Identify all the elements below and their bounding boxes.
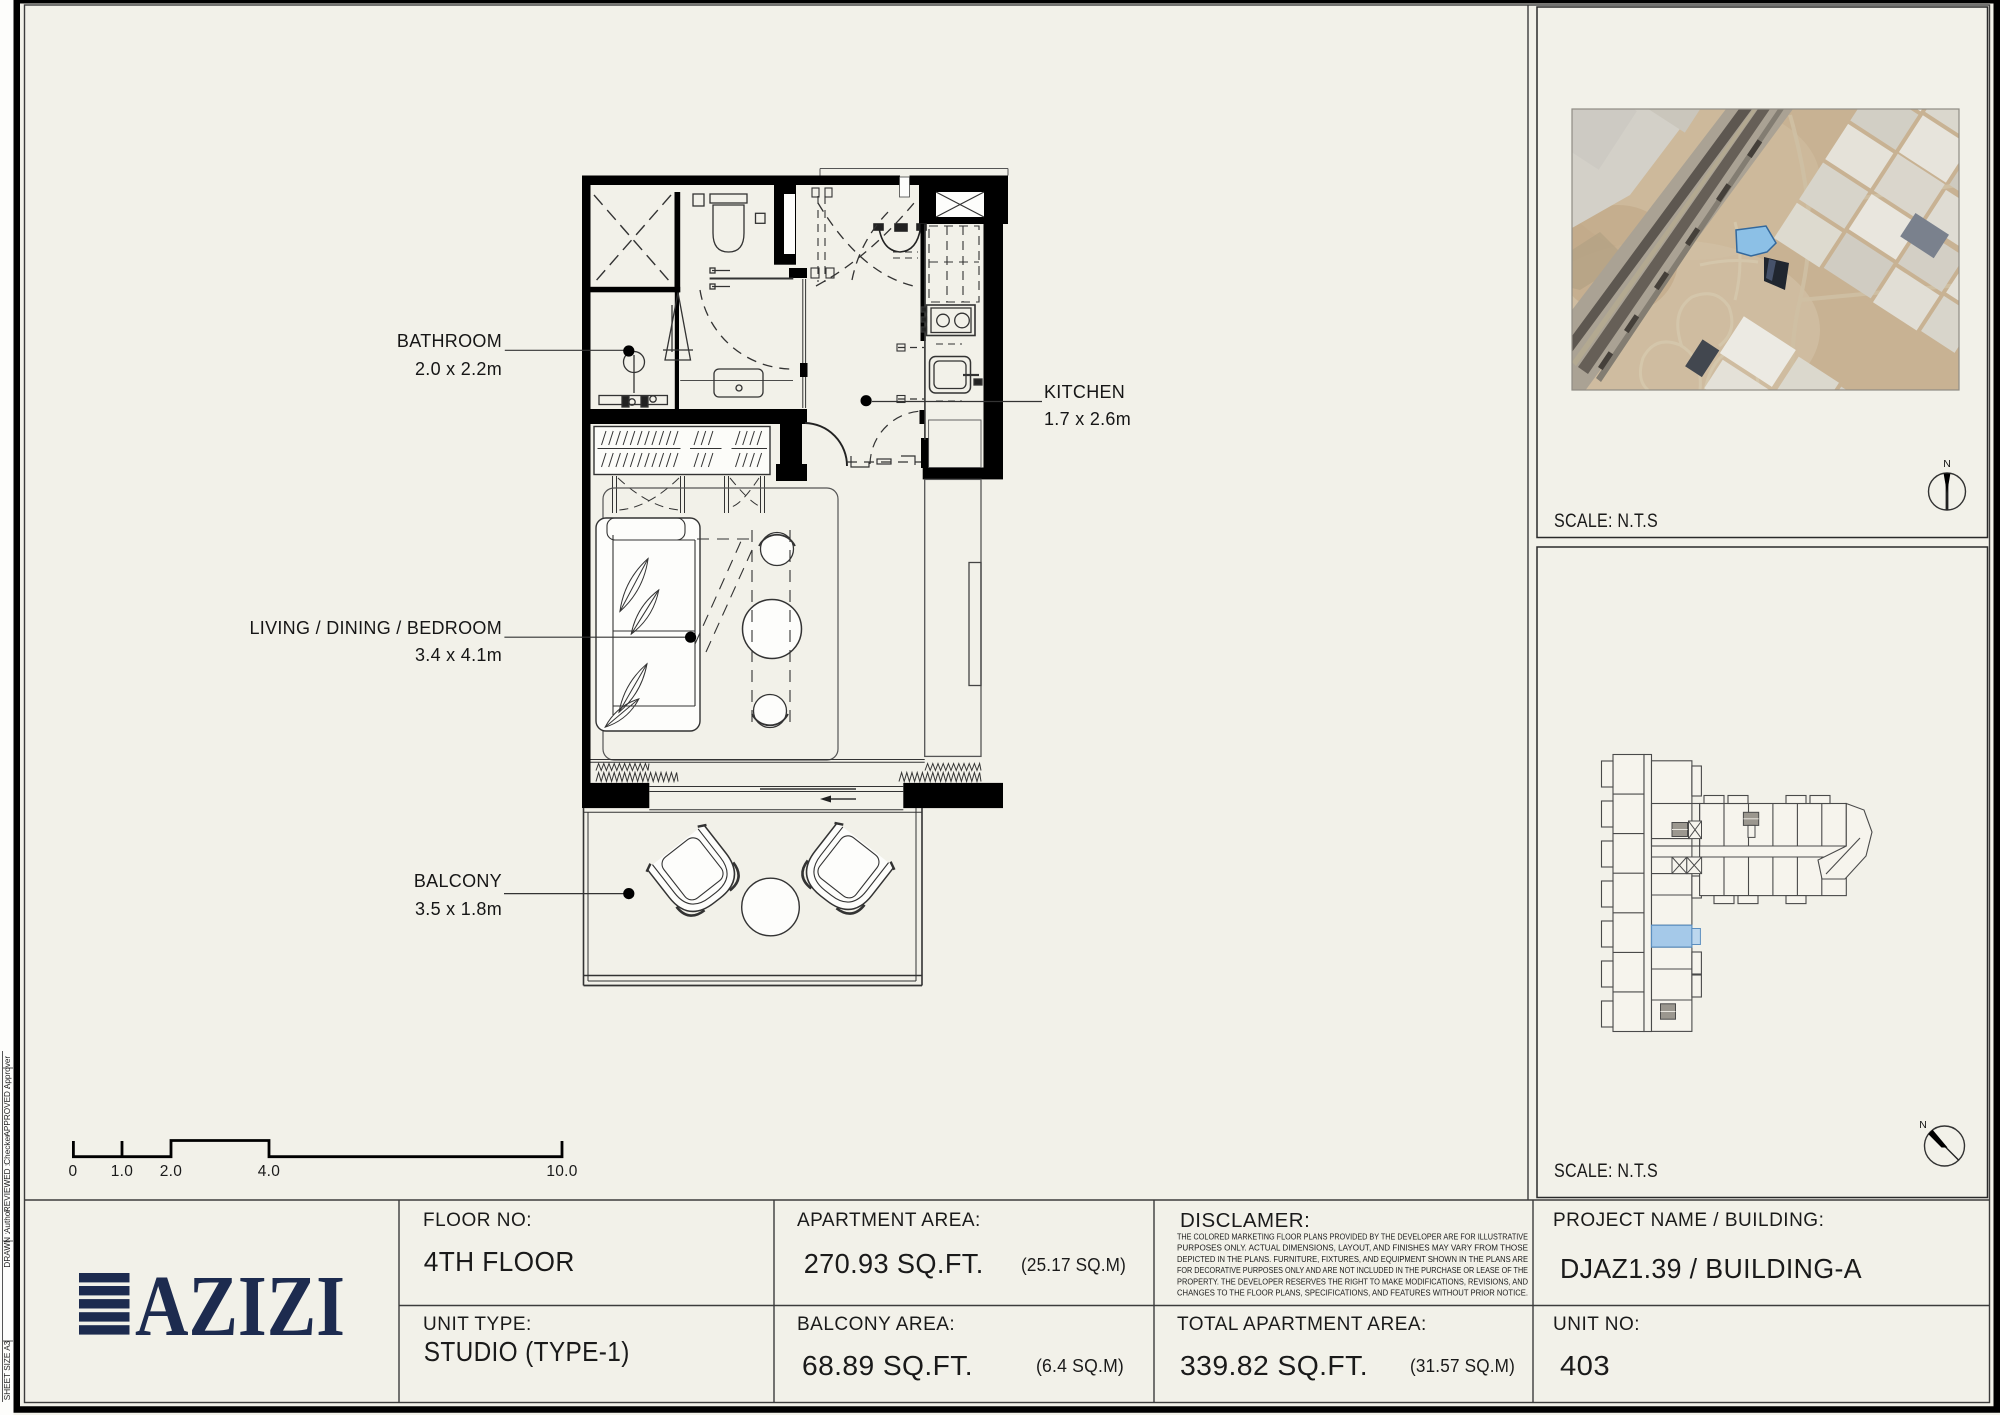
svg-text:4.0: 4.0 [258, 1163, 281, 1180]
svg-text:BATHROOM: BATHROOM [397, 331, 502, 351]
svg-text:APPROVED :: APPROVED : [3, 1086, 12, 1136]
svg-text:3.4 x 4.1m: 3.4 x 4.1m [415, 645, 502, 665]
svg-text:DEPICTED IN THE PLANS. FURNITU: DEPICTED IN THE PLANS. FURNITURE, FIXTUR… [1177, 1254, 1528, 1264]
svg-text:TOTAL APARTMENT AREA:: TOTAL APARTMENT AREA: [1177, 1314, 1427, 1335]
svg-text:SHEET SIZE A3: SHEET SIZE A3 [3, 1340, 12, 1400]
svg-text:10.0: 10.0 [546, 1163, 577, 1180]
svg-text:FOR DECORATIVE PURPOSES ONLY A: FOR DECORATIVE PURPOSES ONLY AND ARE NOT… [1177, 1265, 1528, 1275]
svg-text:3.5 x 1.8m: 3.5 x 1.8m [415, 899, 502, 919]
svg-text:N: N [1943, 458, 1951, 470]
svg-text:1.7 x 2.6m: 1.7 x 2.6m [1044, 409, 1131, 429]
svg-text:68.89 SQ.FT.: 68.89 SQ.FT. [802, 1350, 973, 1381]
svg-text:Approver: Approver [3, 1056, 12, 1089]
svg-text:DISCLAMER:: DISCLAMER: [1180, 1209, 1310, 1232]
svg-text:1.0: 1.0 [111, 1163, 134, 1180]
svg-text:CHANGES TO THE FLOOR PLANS, SP: CHANGES TO THE FLOOR PLANS, SPECIFICATIO… [1177, 1288, 1528, 1298]
svg-text:BALCONY AREA:: BALCONY AREA: [797, 1314, 955, 1335]
svg-text:KITCHEN: KITCHEN [1044, 382, 1125, 402]
svg-text:UNIT NO:: UNIT NO: [1553, 1314, 1640, 1335]
svg-text:4TH FLOOR: 4TH FLOOR [424, 1246, 575, 1277]
svg-text:0: 0 [69, 1163, 78, 1180]
svg-text:N: N [1919, 1119, 1927, 1131]
svg-text:LIVING / DINING / BEDROOM: LIVING / DINING / BEDROOM [249, 618, 502, 638]
svg-text:PROJECT NAME / BUILDING:: PROJECT NAME / BUILDING: [1553, 1210, 1824, 1231]
svg-text:Author: Author [3, 1209, 12, 1233]
svg-text:SCALE: N.T.S: SCALE: N.T.S [1554, 1161, 1658, 1182]
svg-text:(31.57 SQ.M): (31.57 SQ.M) [1410, 1355, 1515, 1376]
svg-text:STUDIO (TYPE-1): STUDIO (TYPE-1) [424, 1336, 630, 1367]
svg-text:DRAWN :: DRAWN : [3, 1232, 12, 1267]
svg-text:FLOOR NO:: FLOOR NO: [423, 1210, 532, 1231]
svg-text:APARTMENT AREA:: APARTMENT AREA: [797, 1210, 981, 1231]
svg-text:2.0: 2.0 [160, 1163, 183, 1180]
svg-text:339.82 SQ.FT.: 339.82 SQ.FT. [1180, 1350, 1368, 1381]
svg-text:PURPOSES ONLY. ACTUAL DIMENSIO: PURPOSES ONLY. ACTUAL DIMENSIONS, LAYOUT… [1177, 1243, 1528, 1253]
svg-text:SCALE: N.T.S: SCALE: N.T.S [1554, 511, 1658, 532]
svg-text:UNIT TYPE:: UNIT TYPE: [423, 1314, 532, 1335]
svg-text:2.0 x 2.2m: 2.0 x 2.2m [415, 359, 502, 379]
svg-text:BALCONY: BALCONY [414, 871, 502, 891]
svg-text:AZIZI: AZIZI [135, 1257, 345, 1354]
svg-text:THE COLORED MARKETING FLOOR PL: THE COLORED MARKETING FLOOR PLANS PROVID… [1177, 1232, 1528, 1242]
svg-text:Checker: Checker [3, 1134, 12, 1165]
svg-text:(6.4 SQ.M): (6.4 SQ.M) [1036, 1355, 1124, 1376]
svg-text:403: 403 [1560, 1350, 1610, 1381]
svg-text:DJAZ1.39 / BUILDING-A: DJAZ1.39 / BUILDING-A [1560, 1253, 1862, 1284]
svg-text:270.93 SQ.FT.: 270.93 SQ.FT. [804, 1248, 984, 1279]
svg-text:(25.17 SQ.M): (25.17 SQ.M) [1021, 1254, 1126, 1275]
svg-text:PROPERTY. THE DEVELOPER RESERV: PROPERTY. THE DEVELOPER RESERVES THE RIG… [1177, 1276, 1528, 1286]
svg-text:REVIEWED :: REVIEWED : [3, 1164, 12, 1212]
